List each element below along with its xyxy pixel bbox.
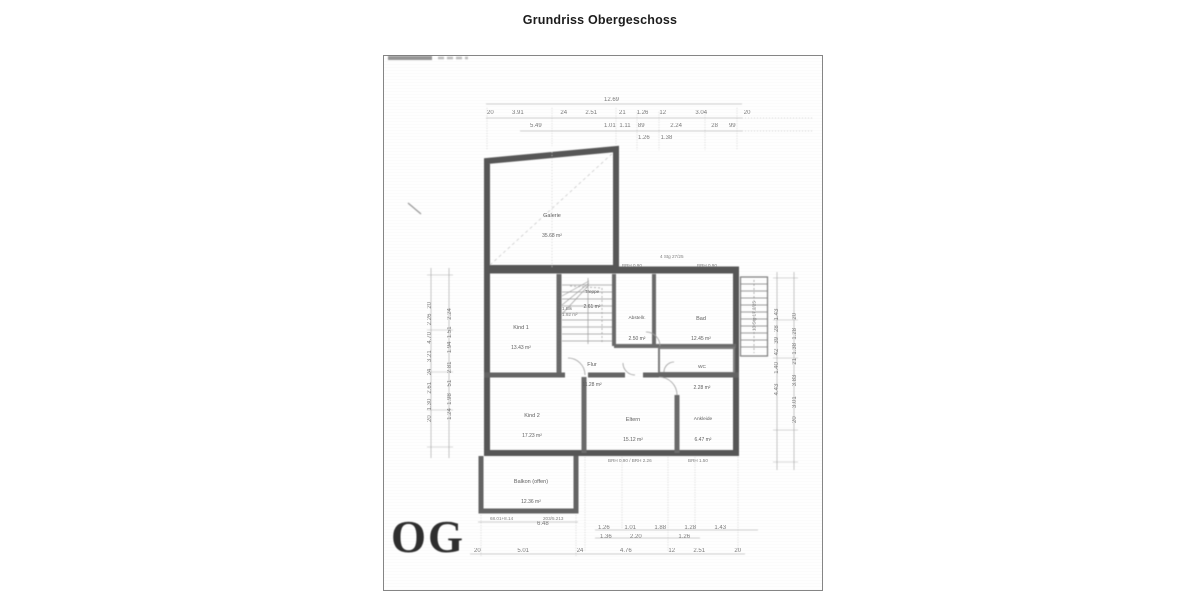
annotation-brh-bottom-b: BRH 1.50 <box>688 458 708 463</box>
room-name: WC <box>694 365 711 372</box>
room-label-ankleide: Ankleide 6.47 m² <box>694 404 712 450</box>
dim-right-outer: 20 3.01 3.83 21 1.38 1.28 20 <box>792 313 798 423</box>
room-name: Kind 2 <box>522 413 542 420</box>
room-label-galerie: Galerie 35.68 m² <box>542 200 562 246</box>
room-area: 11.28 m² <box>582 382 601 389</box>
room-name: Kind 1 <box>511 325 531 332</box>
room-name: Flur <box>582 362 601 369</box>
room-area: 13.43 m² <box>511 345 531 352</box>
dim-bottom-row-a: 1.26 1.01 1.88 1.28 1.43 <box>598 525 726 531</box>
room-label-wc: WC 2.28 m² <box>694 352 711 398</box>
room-area: 17.23 m² <box>522 433 542 440</box>
dim-top-total: 12.69 <box>604 97 619 103</box>
room-name: Treppe <box>584 289 601 294</box>
annotation-brh-bottom-a: BRH 0.90 / BRH 2.26 <box>608 458 652 463</box>
annotation-stair-note: 4 Stg 27/25 <box>660 254 684 259</box>
room-label-kind1: Kind 1 13.43 m² <box>511 312 531 358</box>
dim-top-sub: 5.49 1.01 1.11 89 2.24 28 99 <box>530 123 736 129</box>
dim-right-inner: 4.43 1.40 42 39 28 1.43 <box>774 309 780 396</box>
annotation-brh-right: BRH 0.90 <box>697 263 717 268</box>
annotation-balcony-b: 203/5.213 <box>543 516 563 521</box>
floor-label-og: OG <box>391 511 465 563</box>
room-area: 2.28 m² <box>694 385 711 392</box>
room-label-balkon: Balkon (offen) 12.36 m² <box>514 466 548 512</box>
room-label-flur: Flur 11.28 m² <box>582 349 601 395</box>
room-name: Galerie <box>542 213 562 220</box>
annotation-stair-landing: 1.Blk <box>562 306 572 311</box>
annotation-stair-count: 13 Stg 17.2/25 <box>752 301 757 331</box>
dim-left-inner: 1.24 1.98 51 2.81 1.94 1.51 2.24 <box>447 308 453 420</box>
room-label-eltern: Eltern 15.12 m² <box>623 404 643 450</box>
dim-top-sub2: 1.26 1.38 <box>638 135 672 141</box>
room-name: Abstellr. <box>628 316 645 323</box>
room-label-kind2: Kind 2 17.23 m² <box>522 400 542 446</box>
dim-bottom-total: 20 5.01 24 4.76 12 2.51 20 <box>474 548 741 554</box>
dim-top-row: 20 3.91 24 2.51 21 1.26 12 3.04 20 <box>487 110 750 116</box>
annotation-stair-landing-area: 1.92 m² <box>562 312 578 317</box>
annotation-balcony-a: 68.01+8.14 <box>490 516 513 521</box>
room-label-abstellraum: Abstellr. 2.50 m² <box>628 303 645 349</box>
room-name: Balkon (offen) <box>514 479 548 486</box>
room-area: 15.12 m² <box>623 437 643 444</box>
room-name: Eltern <box>623 417 643 424</box>
room-area: 2.50 m² <box>628 336 645 343</box>
room-area: 6.47 m² <box>694 437 712 444</box>
dim-bottom-row-b: 1.36 2.20 1.26 <box>600 534 690 540</box>
room-label-treppe: Treppe 2.61 m² <box>584 279 601 315</box>
room-area: 12.36 m² <box>514 499 548 506</box>
room-name: Ankleide <box>694 417 712 424</box>
room-name: Bad <box>691 316 711 323</box>
annotation-brh-left: BRH 0.90 <box>622 263 642 268</box>
room-label-bad: Bad 12.45 m² <box>691 303 711 349</box>
dim-left-outer: 20 1.30 2.61 24 3.21 4.70 2.26 20 <box>427 302 433 422</box>
room-area: 12.45 m² <box>691 336 711 343</box>
room-area: 35.68 m² <box>542 233 562 240</box>
page-title: Grundriss Obergeschoss <box>0 13 1200 27</box>
dim-bottom-balcony: 6.48 <box>537 521 549 527</box>
room-area: 2.61 m² <box>584 305 601 310</box>
